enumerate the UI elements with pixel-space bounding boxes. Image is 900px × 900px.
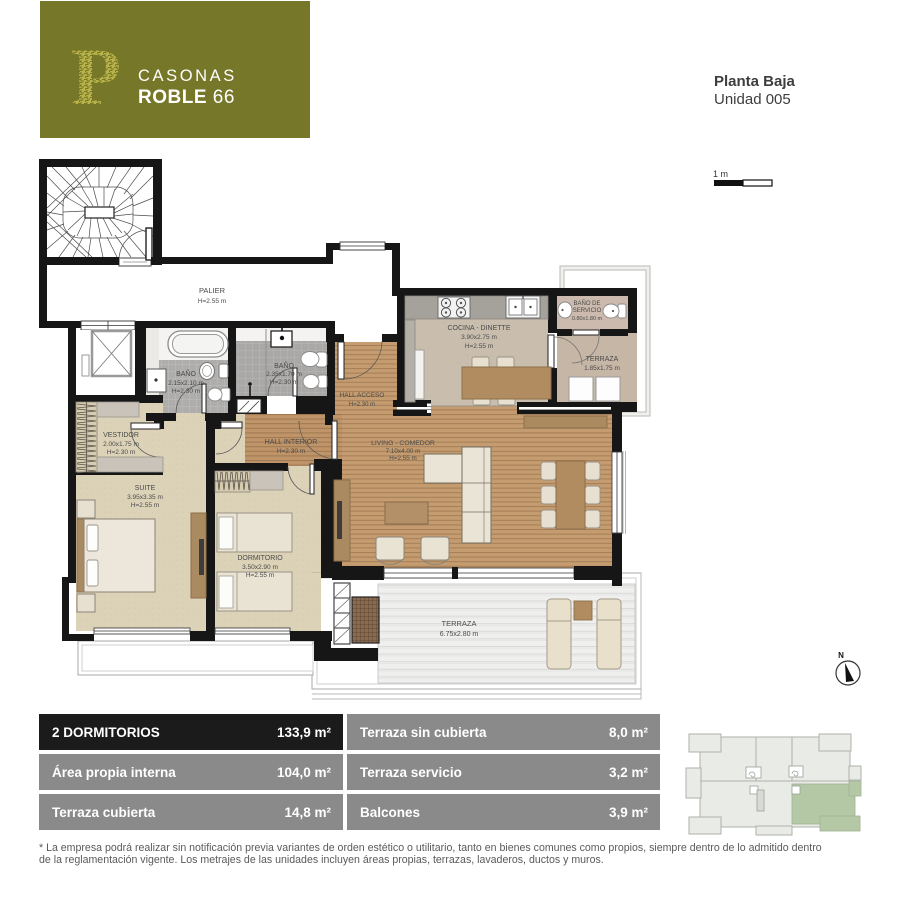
svg-text:HALL INTERIOR: HALL INTERIOR: [265, 439, 318, 446]
svg-text:BAÑO: BAÑO: [176, 369, 196, 378]
svg-text:14,8 m²: 14,8 m²: [284, 805, 331, 820]
svg-text:H=2.30 m: H=2.30 m: [270, 379, 298, 386]
svg-text:3.90x2.75 m: 3.90x2.75 m: [461, 334, 497, 341]
svg-text:1 m: 1 m: [713, 169, 728, 179]
svg-text:H=2.55 m: H=2.55 m: [389, 455, 416, 462]
svg-text:2.35x1.70 m: 2.35x1.70 m: [266, 371, 302, 378]
svg-text:Balcones: Balcones: [360, 805, 420, 820]
svg-text:H=2.30 m: H=2.30 m: [172, 388, 200, 395]
svg-text:2.15x2.10 m: 2.15x2.10 m: [168, 380, 204, 387]
svg-text:Terraza sin cubierta: Terraza sin cubierta: [360, 725, 487, 740]
svg-text:BAÑO DE: BAÑO DE: [573, 300, 600, 307]
svg-text:LIVING - COMEDOR: LIVING - COMEDOR: [371, 440, 435, 447]
svg-text:CASONAS: CASONAS: [138, 67, 237, 85]
svg-text:H=2.30 m: H=2.30 m: [107, 449, 135, 456]
svg-text:Terraza cubierta: Terraza cubierta: [52, 805, 156, 820]
svg-text:3,9 m²: 3,9 m²: [609, 805, 649, 820]
svg-text:Área propia interna: Área propia interna: [52, 765, 176, 780]
svg-text:P: P: [71, 31, 121, 122]
svg-text:1.85x1.75 m: 1.85x1.75 m: [584, 365, 620, 372]
svg-text:N: N: [838, 651, 844, 660]
svg-text:H=2.55 m: H=2.55 m: [246, 572, 274, 579]
svg-text:2.00x1.75 m: 2.00x1.75 m: [103, 441, 139, 448]
svg-text:Terraza servicio: Terraza servicio: [360, 765, 462, 780]
svg-text:104,0 m²: 104,0 m²: [277, 765, 332, 780]
svg-text:3,2 m²: 3,2 m²: [609, 765, 649, 780]
svg-text:TERRAZA: TERRAZA: [441, 619, 476, 628]
svg-text:H=2.55 m: H=2.55 m: [465, 343, 493, 350]
svg-text:3.95x3.35 m: 3.95x3.35 m: [127, 494, 163, 501]
svg-text:2 DORMITORIOS: 2 DORMITORIOS: [52, 725, 160, 740]
svg-text:de la reglamentación vigente.: de la reglamentación vigente. Los metraj…: [39, 854, 604, 866]
svg-text:H=2.30 m: H=2.30 m: [277, 448, 305, 455]
svg-text:PALIER: PALIER: [199, 286, 226, 295]
svg-text:HALL ACCESO: HALL ACCESO: [340, 392, 385, 399]
svg-text:8,0 m²: 8,0 m²: [609, 725, 649, 740]
svg-text:COCINA - DINETTE: COCINA - DINETTE: [447, 325, 510, 332]
svg-text:DORMITORIO: DORMITORIO: [237, 555, 283, 562]
svg-text:H=2.30 m: H=2.30 m: [349, 402, 375, 408]
svg-text:VESTIDOR: VESTIDOR: [103, 432, 139, 439]
svg-text:7.10x4.00 m: 7.10x4.00 m: [386, 448, 421, 455]
svg-text:ROBLE 66: ROBLE 66: [138, 87, 235, 108]
svg-text:H=2.55 m: H=2.55 m: [198, 298, 226, 305]
svg-text:H=2.55 m: H=2.55 m: [131, 502, 159, 509]
svg-text:Unidad 005: Unidad 005: [714, 91, 791, 108]
svg-text:BAÑO: BAÑO: [274, 361, 294, 370]
svg-text:Planta Baja: Planta Baja: [714, 73, 796, 90]
svg-text:6.75x2.80 m: 6.75x2.80 m: [440, 631, 479, 638]
svg-text:* La empresa podrá realizar si: * La empresa podrá realizar sin notifica…: [39, 842, 822, 854]
svg-text:SERVICIO: SERVICIO: [573, 308, 602, 314]
svg-text:SUITE: SUITE: [135, 485, 156, 492]
svg-text:133,9 m²: 133,9 m²: [277, 725, 332, 740]
svg-text:TERRAZA: TERRAZA: [586, 356, 619, 363]
svg-text:3.50x2.90 m: 3.50x2.90 m: [242, 564, 278, 571]
svg-text:0.80x1.80 m: 0.80x1.80 m: [572, 316, 603, 322]
